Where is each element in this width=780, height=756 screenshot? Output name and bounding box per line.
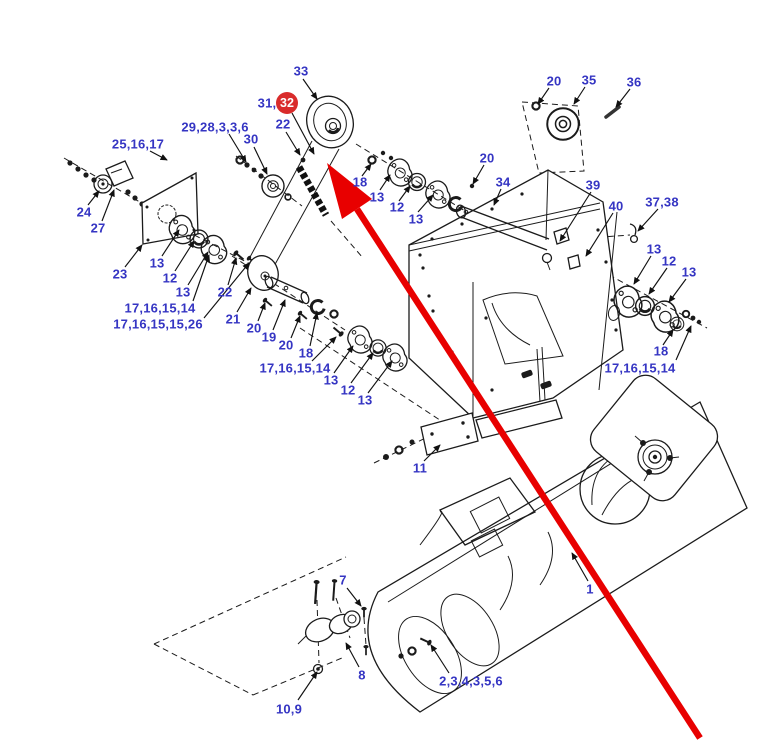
sprocket-30	[262, 175, 284, 197]
part-label: 27	[91, 221, 106, 236]
part-label: 12	[163, 271, 178, 286]
part-label: 33	[294, 64, 309, 79]
part-label: 12	[390, 200, 405, 215]
part-label: 13	[358, 393, 373, 408]
part-label: 10,9	[276, 702, 302, 717]
part-label: 29,28,3,3,6	[181, 120, 248, 135]
part-label: 11	[413, 461, 427, 476]
part-label: 20	[480, 151, 495, 166]
bolt-7	[361, 607, 366, 618]
part-label: 22	[276, 117, 291, 132]
part-label: 21	[226, 312, 241, 327]
part-label: 2,3,4,3,5,6	[439, 674, 503, 689]
part-label: 17,16,15,14	[125, 301, 196, 316]
exploded-parts-diagram: 25,16,17 29,28,3,3,6 33 31, 32 22 30 20 …	[0, 0, 780, 756]
part-label: 13	[409, 212, 424, 227]
part-label: 12	[341, 383, 356, 398]
part-label-31: 31,	[258, 96, 277, 111]
part-label: 24	[77, 205, 92, 220]
part-label: 8	[358, 668, 365, 683]
part-label: 17,16,15,15,26	[113, 317, 203, 332]
part-label: 34	[496, 175, 511, 190]
bracket-27	[106, 161, 133, 186]
part-label: 13	[647, 242, 662, 257]
part-label: 17,16,15,14	[605, 361, 676, 376]
drive-belt	[249, 141, 312, 259]
part-label: 39	[586, 178, 601, 193]
drive-chain	[299, 167, 326, 215]
part-label: 7	[339, 573, 346, 588]
part-label: 30	[244, 132, 259, 147]
plate-11	[383, 413, 478, 460]
part-label: 20	[279, 338, 294, 353]
part-label: 18	[299, 346, 314, 361]
hook-37-38	[630, 224, 636, 235]
part-label: 20	[547, 74, 562, 89]
part-label: 12	[662, 254, 677, 269]
part-label: 35	[582, 73, 597, 88]
part-label: 13	[682, 265, 697, 280]
part-label: 18	[654, 344, 669, 359]
part-label: 13	[370, 190, 385, 205]
highlight-badge-32: 32	[276, 92, 298, 114]
diagram-line-art	[0, 0, 780, 756]
part-label: 19	[262, 330, 277, 345]
part-label: 18	[353, 175, 368, 190]
part-label: 25,16,17	[112, 137, 164, 152]
bearing-row-bottom	[332, 324, 410, 374]
part-label: 36	[627, 75, 642, 90]
snap-ring-18	[310, 299, 325, 315]
grain-tank	[409, 170, 637, 438]
part-label: 20	[247, 321, 262, 336]
part-label: 13	[324, 373, 339, 388]
part-label: 40	[609, 199, 624, 214]
part-label: 22	[218, 285, 233, 300]
idler-sprocket-35	[532, 102, 619, 139]
pin-36	[606, 107, 619, 117]
drive-plate-assembly	[67, 160, 257, 266]
part-label: 1	[586, 582, 593, 597]
part-label: 13	[176, 285, 191, 300]
sprocket-30-row	[236, 156, 305, 199]
part-label: 13	[150, 256, 165, 271]
part-label: 17,16,15,14	[260, 361, 331, 376]
bearing-row-right	[611, 283, 701, 335]
part-label: 37,38	[645, 195, 679, 210]
part-label: 23	[113, 267, 128, 282]
